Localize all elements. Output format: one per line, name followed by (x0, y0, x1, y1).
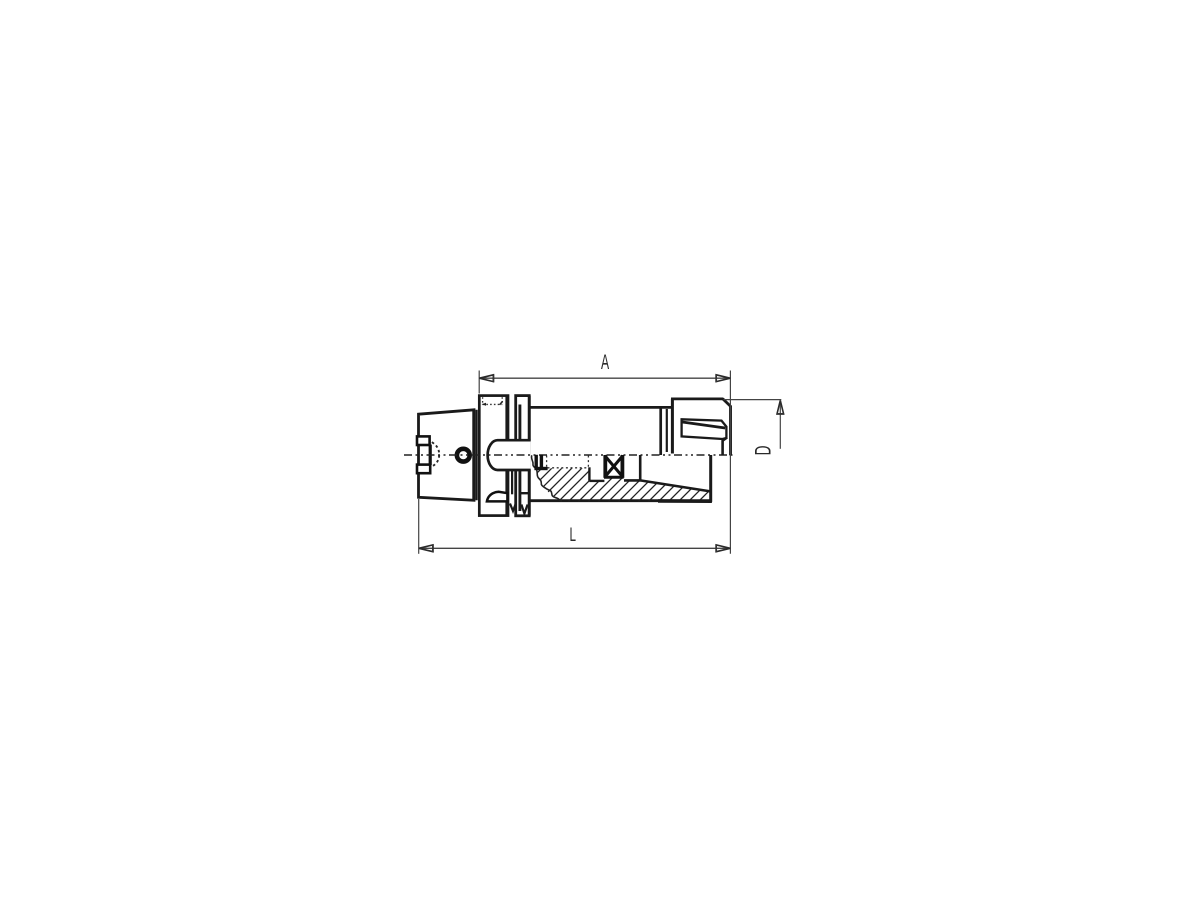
svg-text:A: A (601, 349, 610, 373)
svg-text:L: L (570, 524, 577, 546)
svg-text:D: D (750, 445, 775, 455)
